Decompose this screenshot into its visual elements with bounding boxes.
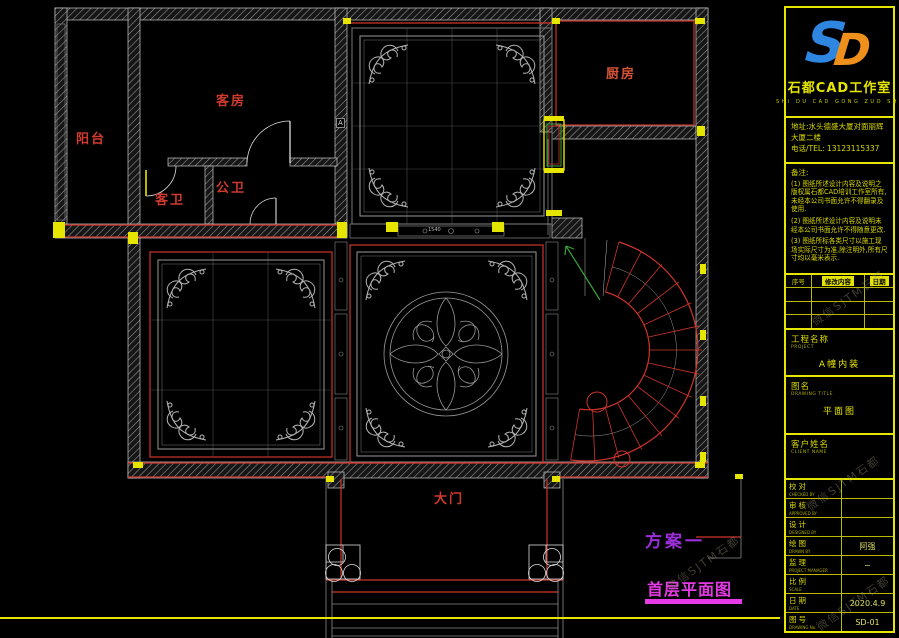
ceiling-panel-top bbox=[350, 28, 552, 238]
client-label-cn: 客户姓名 bbox=[791, 438, 888, 450]
note-item: (3) 图纸所标各类尺寸以施工现场实际尺寸为准,除注明外,所有尺寸均以毫米表示. bbox=[791, 237, 888, 263]
project-value: A幢内装 bbox=[791, 357, 888, 370]
note-item: (1) 图纸所述设计内容及说明之版权属石都CAD培训工作室所有,未经本公司书面允… bbox=[791, 180, 888, 214]
sign-label-cn: 设计 bbox=[789, 519, 838, 530]
sign-label-cn: 监理 bbox=[789, 557, 838, 568]
sign-label-en: PROJECT MANAGER bbox=[789, 568, 838, 573]
project-name-field: 工程名称 PROJECT A幢内装 bbox=[786, 330, 893, 377]
sign-value: SD-01 bbox=[842, 613, 893, 631]
logo-section: S D 石都CAD工作室 SHI DU CAD GONG ZUO SHI bbox=[786, 8, 893, 118]
title-block: S D 石都CAD工作室 SHI DU CAD GONG ZUO SHI 地址:… bbox=[780, 0, 899, 638]
sign-row-drawn: 绘图DRAWN BY 阿强 bbox=[786, 537, 893, 556]
logo-letter-d: D bbox=[831, 25, 873, 76]
revision-header: 序号 bbox=[786, 275, 812, 288]
direction-arrow bbox=[565, 246, 600, 300]
room-label-guest-bath: 客卫 bbox=[155, 189, 185, 208]
revision-header: 修改内容 bbox=[822, 276, 854, 286]
porch-columns bbox=[326, 545, 564, 582]
sign-label-cn: 绘图 bbox=[789, 538, 838, 549]
room-label-kitchen: 厨房 bbox=[606, 63, 636, 82]
sign-label-en: DESIGNED BY bbox=[789, 530, 838, 535]
doors bbox=[146, 121, 290, 224]
sd-logo-icon: S D bbox=[804, 19, 876, 75]
drawing-caption-underline bbox=[645, 599, 742, 604]
sign-row-approved: 审核APPROVED BY bbox=[786, 499, 893, 518]
notes-section: 备注: (1) 图纸所述设计内容及说明之版权属石都CAD培训工作室所有,未经本公… bbox=[786, 164, 893, 275]
scheme-label: 方案一 bbox=[645, 527, 705, 552]
sign-value: 阿强 bbox=[842, 537, 893, 555]
medallion bbox=[384, 292, 508, 416]
revision-empty-row bbox=[786, 315, 893, 328]
sign-value bbox=[842, 518, 893, 536]
notes-title: 备注: bbox=[791, 168, 888, 178]
room-label-guest-room: 客房 bbox=[216, 90, 246, 109]
cad-drawing-sheet: 阳台 客房 厨房 客卫 公卫 大门 A 1540 方案一 首层平面图 微信SJT… bbox=[0, 0, 899, 638]
project-label-en: PROJECT bbox=[791, 345, 888, 350]
drawing-label-en: DRAWING TITLE bbox=[791, 392, 888, 397]
drawing-value: 平面图 bbox=[791, 404, 888, 417]
section-marker: A bbox=[336, 118, 345, 128]
sign-label-cn: 比例 bbox=[789, 576, 838, 587]
drawing-label-cn: 图名 bbox=[791, 380, 888, 392]
sign-row-designed: 设计DESIGNED BY bbox=[786, 518, 893, 537]
sign-label-en: DRAWN BY bbox=[789, 549, 838, 554]
ceiling-panel-center bbox=[350, 245, 543, 463]
entrance-steps bbox=[326, 478, 742, 638]
studio-name: 石都CAD工作室 bbox=[788, 77, 891, 96]
sign-value: ~ bbox=[842, 556, 893, 574]
drawing-title-field: 图名 DRAWING TITLE 平面图 bbox=[786, 377, 893, 434]
room-label-main-gate: 大门 bbox=[434, 488, 464, 507]
sign-value bbox=[842, 499, 893, 517]
address-line1: 地址:水头德盛大厦对面丽辉 bbox=[791, 122, 888, 133]
address-section: 地址:水头德盛大厦对面丽辉 大厦二楼 电话/TEL: 13123115337 bbox=[786, 118, 893, 164]
phone: 电话/TEL: 13123115337 bbox=[791, 144, 888, 155]
dimension-text: 1540 bbox=[428, 227, 441, 233]
sign-row-manager: 监理PROJECT MANAGER ~ bbox=[786, 556, 893, 575]
project-label-cn: 工程名称 bbox=[791, 333, 888, 345]
ceiling-panel-left bbox=[150, 252, 332, 457]
sign-label-cn: 日期 bbox=[789, 595, 838, 606]
address-line2: 大厦二楼 bbox=[791, 133, 888, 144]
note-item: (2) 图纸所述设计内容及说明未经本公司书面允许不得随意更改. bbox=[791, 217, 888, 234]
spiral-staircase bbox=[565, 238, 702, 467]
sign-label-en: SCALE bbox=[789, 587, 838, 592]
room-label-public-bath: 公卫 bbox=[216, 177, 246, 196]
room-label-balcony: 阳台 bbox=[76, 128, 106, 147]
studio-pinyin: SHI DU CAD GONG ZUO SHI bbox=[776, 99, 899, 105]
